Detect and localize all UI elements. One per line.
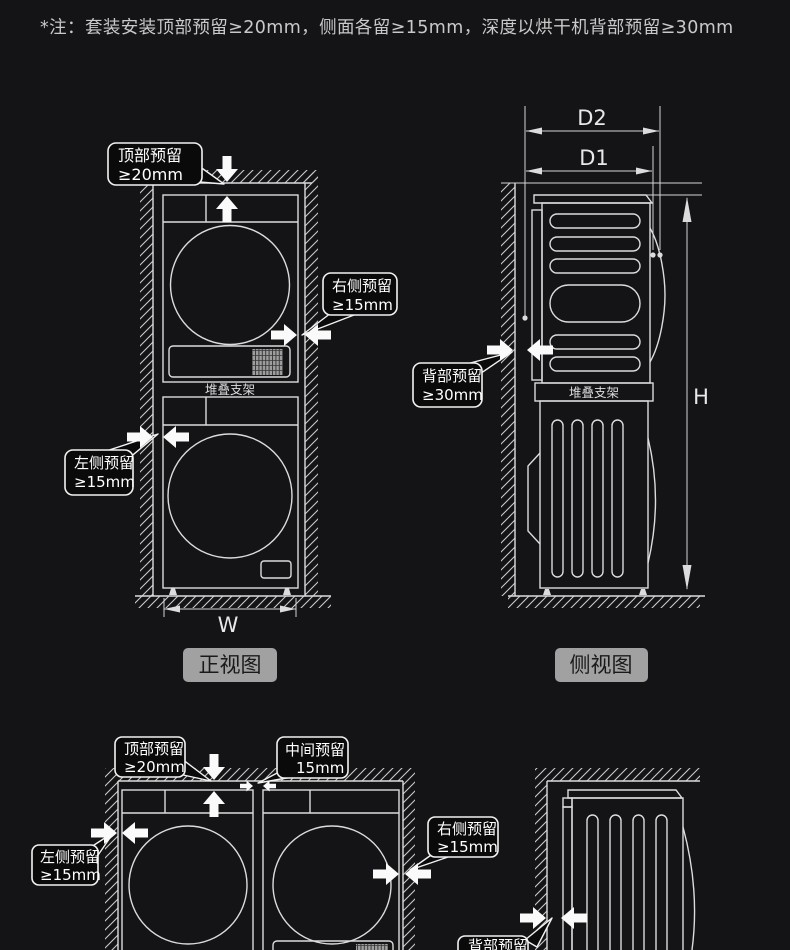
vent-slot	[552, 420, 563, 577]
callout-line1: 背部预留	[422, 367, 482, 385]
back-wall-hatch	[501, 183, 515, 596]
dim-arrowhead-top	[683, 197, 692, 222]
dim-arrowhead	[643, 128, 659, 135]
title-text: 正视图	[199, 653, 262, 677]
right-wall-hatch	[305, 172, 318, 596]
floor-hatch	[508, 596, 700, 608]
right-foot	[639, 589, 647, 595]
top-reserve-callout: 顶部预留 ≥20mm	[108, 143, 224, 185]
unit-door	[129, 826, 247, 944]
unit-side	[563, 790, 695, 950]
vent-slot	[550, 259, 640, 273]
callout-line2: ≥15mm	[332, 296, 393, 314]
bottom-front-view-diagram: 顶部预留 ≥20mm 中间预留 15mm 左侧预留 ≥15mm 右侧预留 ≥15…	[32, 737, 498, 950]
d2-value: D2	[577, 106, 607, 130]
reference-dot	[650, 252, 655, 257]
left-reserve-callout: 左侧预留 ≥15mm	[32, 832, 114, 885]
vent-slot	[550, 214, 640, 228]
service-flap	[261, 561, 291, 578]
callout-line2: ≥20mm	[118, 165, 183, 184]
vent-slot	[656, 815, 667, 950]
callout-line1: 背部预留	[468, 937, 528, 950]
front-view-title: 正视图	[183, 648, 277, 682]
callout-line1: 右侧预留	[437, 820, 497, 838]
dryer-door	[171, 226, 290, 345]
top-reserve-callout: 顶部预留 ≥20mm	[115, 737, 211, 781]
callout-line2: ≥30mm	[422, 386, 483, 404]
callout-line2: ≥15mm	[74, 473, 135, 491]
dim-arrowhead	[526, 128, 542, 135]
dim-arrowhead	[526, 168, 542, 175]
reference-dot	[657, 252, 662, 257]
back-gap-arrow-in	[527, 339, 553, 361]
diagram-svg: 堆叠支架 W 顶	[0, 0, 790, 950]
callout-line1: 中间预留	[285, 741, 345, 759]
top-plate	[568, 790, 682, 798]
reference-dot	[522, 315, 527, 320]
left-wall-hatch	[105, 781, 118, 950]
back-gap-arrow-in	[561, 907, 587, 929]
vent-slot	[612, 420, 623, 577]
left-foot	[543, 589, 551, 595]
right-gap-arrow-in	[271, 324, 297, 346]
callout-line1: 右侧预留	[332, 277, 392, 295]
dim-arrowhead-bottom	[683, 565, 692, 590]
back-reserve-callout: 背部预留 ≥30mm	[413, 352, 512, 407]
callout-line2: ≥15mm	[437, 838, 498, 856]
washer-door	[168, 434, 292, 558]
left-gap-arrow-in	[163, 426, 189, 448]
back-panel	[563, 807, 572, 950]
callout-line1: 顶部预留	[118, 146, 182, 165]
vent-slot	[610, 815, 621, 950]
left-unit-front	[122, 790, 253, 950]
callout-line2: ≥15mm	[40, 866, 101, 884]
stacking-bracket-label: 堆叠支架	[205, 382, 255, 397]
height-dimension: H	[683, 197, 709, 590]
middle-reserve-callout: 中间预留 15mm	[258, 737, 348, 783]
bottom-side-view-diagram: 背部预留	[458, 768, 700, 950]
back-step	[563, 798, 572, 807]
front-view-diagram: 堆叠支架 W 顶	[65, 143, 397, 682]
vent-slot	[592, 420, 603, 577]
door-bulge-curve	[648, 438, 656, 563]
washer-body	[540, 401, 648, 588]
installation-diagram-page: *注：套装安装顶部预留≥20mm，侧面各留≥15mm，深度以烘干机背部预留≥30…	[0, 0, 790, 950]
right-foot	[283, 589, 291, 596]
vent-slot	[587, 815, 598, 950]
left-gap-arrow-in	[122, 822, 148, 844]
callout-line2: ≥20mm	[124, 758, 185, 776]
washer-side	[528, 401, 656, 595]
right-gap-arrow-in	[373, 863, 399, 885]
side-view-title: 侧视图	[555, 648, 648, 682]
left-foot	[169, 589, 177, 596]
dim-arrowhead	[636, 168, 652, 175]
vent-slot	[572, 420, 583, 577]
washer-front	[163, 397, 298, 595]
width-value: W	[218, 613, 239, 637]
height-value: H	[693, 385, 709, 409]
left-wall-hatch	[140, 183, 153, 596]
vent-slot	[550, 237, 640, 251]
right-reserve-callout: 右侧预留 ≥15mm	[410, 817, 498, 870]
vent-opening	[550, 285, 640, 322]
callout-line1: 左侧预留	[40, 848, 100, 866]
top-plate	[534, 195, 652, 203]
callout-line2: 15mm	[296, 759, 344, 777]
stacking-bracket-label: 堆叠支架	[569, 385, 619, 400]
door-bulge-curve	[683, 827, 695, 950]
unit-body	[122, 790, 253, 950]
dryer-side	[532, 195, 665, 383]
dryer-vent-grille	[252, 349, 283, 375]
callout-line1: 左侧预留	[74, 454, 134, 472]
unit-door	[273, 826, 391, 944]
top-gap-up-arrow	[216, 196, 238, 222]
title-text: 侧视图	[570, 653, 633, 677]
vent-grille	[356, 944, 388, 950]
vent-slot	[550, 357, 640, 371]
ceiling-hatch	[535, 768, 700, 781]
vent-slot	[550, 335, 640, 349]
side-view-diagram: 堆叠支架	[413, 106, 709, 682]
right-wall-hatch	[403, 781, 415, 950]
door-bulge-curve	[650, 228, 665, 362]
dryer-body	[542, 203, 650, 383]
callout-line1: 顶部预留	[124, 740, 184, 758]
vent-slot	[633, 815, 644, 950]
back-bump	[528, 453, 540, 544]
dryer-front	[163, 195, 298, 382]
d1-value: D1	[579, 146, 609, 170]
